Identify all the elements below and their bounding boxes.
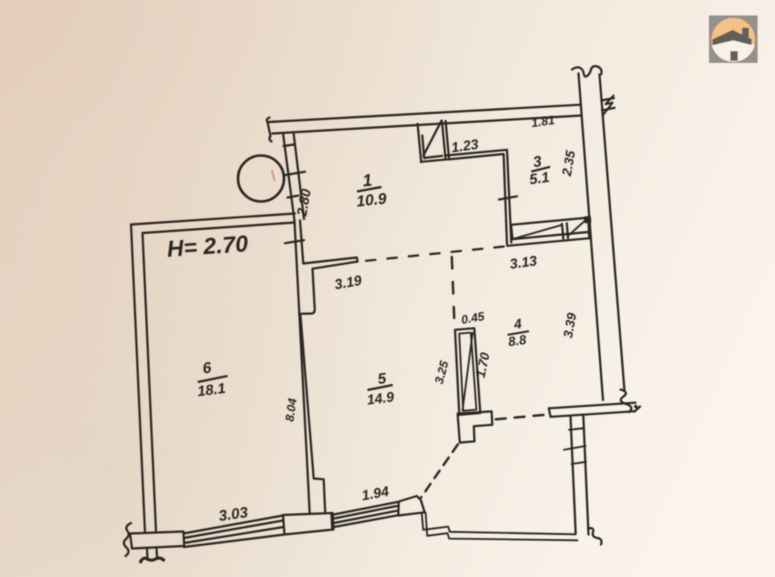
svg-text:18.1: 18.1	[197, 381, 227, 400]
svg-text:8.8: 8.8	[507, 332, 528, 349]
svg-text:5.1: 5.1	[528, 170, 550, 189]
svg-text:10.9: 10.9	[356, 190, 388, 210]
svg-text:14.9: 14.9	[366, 388, 395, 407]
svg-text:1: 1	[362, 171, 373, 191]
